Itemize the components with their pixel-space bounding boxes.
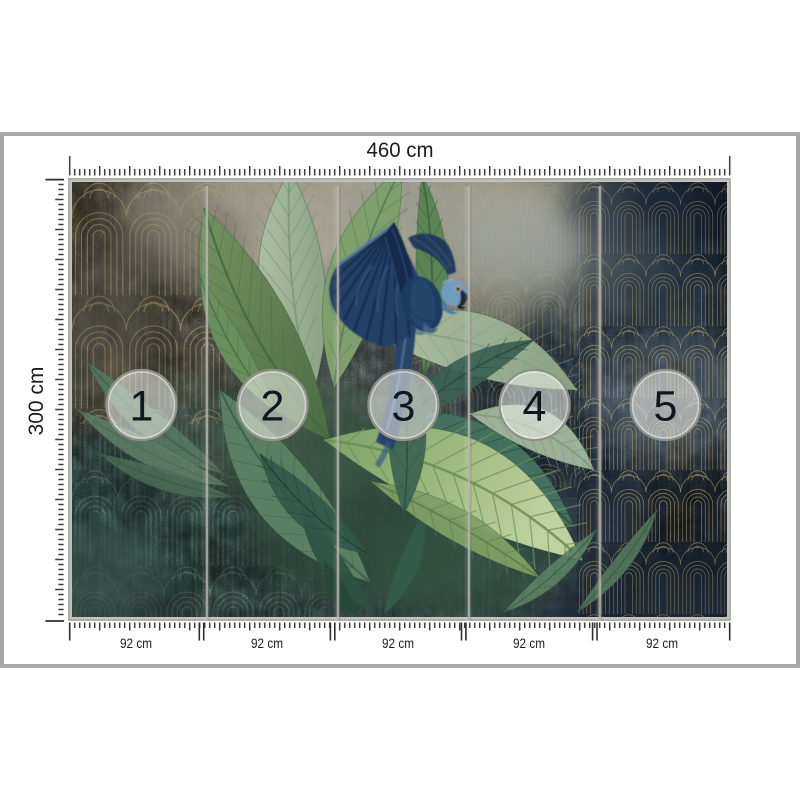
svg-text:4: 4 — [523, 383, 547, 431]
svg-text:2: 2 — [261, 383, 285, 431]
svg-text:1: 1 — [130, 383, 154, 431]
svg-text:3: 3 — [392, 383, 416, 431]
svg-text:5: 5 — [654, 383, 678, 431]
